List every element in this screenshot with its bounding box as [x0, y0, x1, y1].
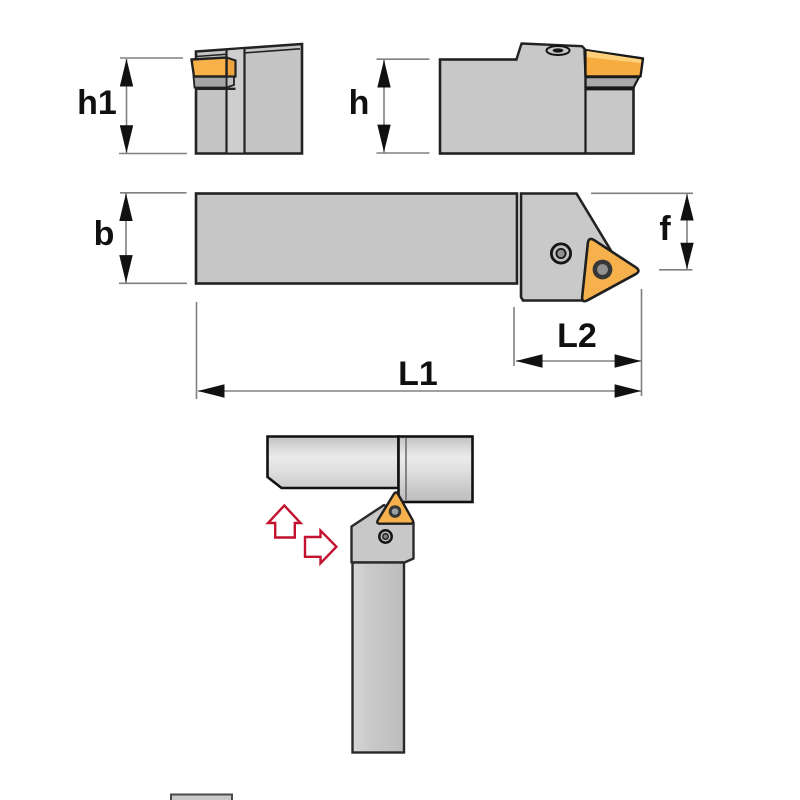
svg-text:L2: L2 — [557, 317, 597, 355]
svg-text:h: h — [349, 84, 370, 122]
svg-text:h1: h1 — [77, 84, 117, 122]
svg-text:L1: L1 — [398, 355, 438, 393]
svg-text:b: b — [94, 215, 115, 253]
svg-text:f: f — [659, 210, 671, 248]
